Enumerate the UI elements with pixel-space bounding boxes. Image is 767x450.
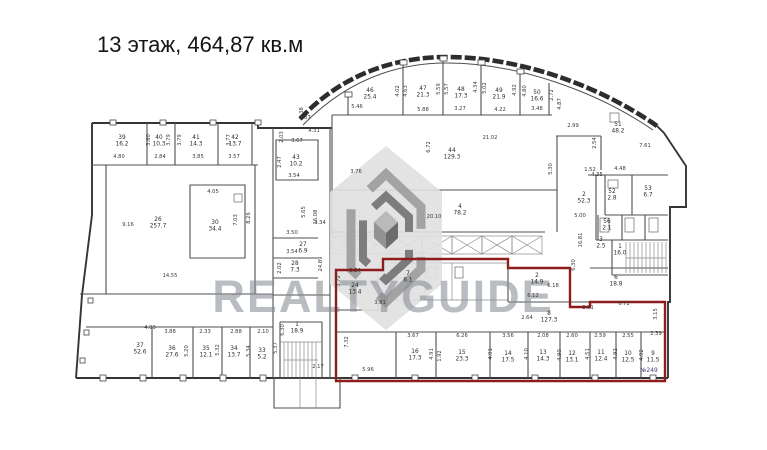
dimension-label: 2.84 — [154, 154, 166, 160]
room-label: 1012.5 — [622, 351, 635, 363]
room-label: 4010.3 — [153, 135, 166, 147]
room-label: 3752.6 — [134, 343, 147, 355]
room-label: 1417.5 — [502, 351, 515, 363]
room-label: 1112.4 — [595, 350, 608, 362]
dimension-label: 14.55 — [163, 273, 178, 279]
dimension-label: 4.92 — [613, 348, 619, 360]
dimension-label: 24.89 — [318, 257, 324, 272]
dimension-label: 2.88 — [230, 329, 242, 335]
dimension-label: 2.72 — [549, 89, 555, 101]
dimension-label: 5.57 — [444, 83, 450, 95]
dimension-label: 7.61 — [639, 143, 651, 149]
dimension-label: 4.09 — [144, 325, 156, 331]
dimension-label: 3.77 — [226, 134, 232, 146]
dimension-label: 4.91 — [488, 348, 494, 360]
room-label: 4310.2 — [290, 155, 303, 167]
dimension-label: 5.65 — [301, 206, 307, 218]
room-label: 1314.3 — [537, 350, 550, 362]
dimension-label: 4.35 — [591, 172, 603, 178]
dimension-label: 2.60 — [566, 333, 578, 339]
dimension-label: 2.08 — [537, 333, 549, 339]
room-label: 3916.2 — [116, 135, 129, 147]
dimension-label: 5.30 — [548, 163, 554, 175]
room-label: 118.9 — [291, 322, 304, 334]
room-label: 116.0 — [614, 244, 627, 256]
dimension-label: 2.10 — [257, 329, 269, 335]
dimension-label: 4.92 — [639, 349, 645, 361]
dimension-label: 3.50 — [286, 230, 298, 236]
dimension-label: 3.88 — [164, 329, 176, 335]
dimension-label: 4.92 — [512, 84, 518, 96]
dimension-label: 5.20 — [184, 345, 190, 357]
dimension-label: 4.91 — [429, 348, 435, 360]
dimension-label: 3.79 — [177, 134, 183, 146]
dimension-label: 4.31 — [308, 128, 320, 134]
dimension-label: 2.38 — [299, 107, 305, 119]
dimension-label: 3.27 — [454, 106, 466, 112]
dimension-label: 3.84 — [349, 268, 361, 274]
room-label: 911.5 — [647, 351, 660, 363]
dimension-label: 3.60 — [146, 134, 152, 146]
dimension-label: 3.72 — [336, 275, 342, 287]
room-label: 276.9 — [298, 242, 308, 254]
dimension-label: 4.90 — [557, 349, 563, 361]
dimension-label: 7.32 — [344, 336, 350, 348]
dimension-label: 2.91 — [582, 305, 594, 311]
dimension-label: 5.32 — [215, 344, 221, 356]
dimension-label: 6.26 — [456, 333, 468, 339]
dimension-label: 6.30 — [280, 324, 286, 336]
dimension-label: 2.99 — [567, 123, 579, 129]
dimension-label: 9.16 — [122, 222, 134, 228]
page-title: 13 этаж, 464,87 кв.м — [97, 32, 303, 57]
watermark-text: REALTYGUIDE — [212, 271, 553, 322]
dimension-label: 4.10 — [524, 348, 530, 360]
dimension-label: 20.10 — [427, 214, 442, 220]
dimension-label: 21.02 — [483, 135, 498, 141]
dimension-label: 5.37 — [273, 342, 279, 354]
room-label: 536.7 — [643, 186, 653, 198]
room-label: 3627.6 — [166, 346, 179, 358]
room-label: 3034.4 — [209, 220, 222, 232]
floorplan-page: REALTYGUIDE №249 3916.24010.34114.34213.… — [0, 0, 767, 450]
dimension-label: 3.81 — [374, 300, 386, 306]
room-label: 3413.7 — [228, 346, 241, 358]
dimension-label: 2.17 — [312, 364, 324, 370]
dimension-label: 3.56 — [502, 333, 514, 339]
dimension-label: 2.03 — [279, 131, 285, 143]
dimension-label: 2.55 — [622, 333, 634, 339]
dimension-label: 6.72 — [618, 301, 630, 307]
dimension-label: 3.79 — [166, 134, 172, 146]
dimension-label: 4.80 — [522, 85, 528, 97]
room-label: 4721.3 — [417, 86, 430, 98]
dimension-label: 3.67 — [291, 138, 303, 144]
dimension-label: 2.02 — [277, 262, 283, 274]
dimension-label: 6.30 — [571, 259, 577, 271]
dimension-label: 3.57 — [228, 154, 240, 160]
room-label: 44129.3 — [444, 148, 461, 160]
dimension-label: 4.80 — [113, 154, 125, 160]
room-label: 1617.3 — [409, 349, 422, 361]
dimension-label: 5.00 — [574, 213, 586, 219]
room-label: 4114.3 — [190, 135, 203, 147]
stairs-left — [280, 342, 322, 377]
room-label: 26257.7 — [150, 217, 167, 229]
room-label: 618.8 — [610, 275, 623, 287]
dimension-label: 3.54 — [286, 249, 298, 255]
dimension-label: 3.76 — [350, 169, 362, 175]
dimension-label: 6.18 — [547, 283, 559, 289]
room-label: 4921.9 — [493, 88, 506, 100]
dimension-label: 5.59 — [436, 83, 442, 95]
floor-plan-drawing: REALTYGUIDE №249 3916.24010.34114.34213.… — [0, 0, 767, 450]
dimension-label: 2.54 — [592, 137, 598, 149]
dimension-label: 5.02 — [482, 82, 488, 94]
dimension-label: 6.12 — [527, 293, 539, 299]
room-label: 5016.6 — [531, 90, 544, 102]
entrance-appendix — [274, 378, 340, 408]
dimension-label: 2.59 — [594, 333, 606, 339]
room-label: 252.3 — [578, 192, 591, 204]
dimension-label: 3.85 — [192, 154, 204, 160]
dimension-label: 2.39 — [650, 331, 662, 337]
room-label: 562.1 — [602, 219, 612, 231]
dimension-label: 4.48 — [614, 166, 626, 172]
dimension-label: 4.34 — [473, 81, 479, 93]
dimension-label: 4.22 — [494, 107, 506, 113]
dimension-label: 3.48 — [531, 106, 543, 112]
dimension-label: 4.05 — [207, 189, 219, 195]
room-label: 287.3 — [290, 261, 300, 273]
room-label: 1213.1 — [566, 351, 579, 363]
selected-area-badge: №249 — [640, 367, 658, 374]
dimension-label: 5.46 — [351, 104, 363, 110]
room-label: 1523.3 — [456, 350, 469, 362]
dimension-label: 3.15 — [653, 308, 659, 320]
dimension-label: 5.34 — [246, 345, 252, 357]
dimension-label: 1.92 — [437, 350, 443, 362]
dimension-label: 3.54 — [288, 173, 300, 179]
dimension-label: 3.34 — [314, 220, 326, 226]
dimension-label: 2.47 — [277, 156, 283, 168]
dimension-label: 5.96 — [362, 367, 374, 373]
room-label: 4625.4 — [364, 88, 377, 100]
dimension-label: 3.67 — [407, 333, 419, 339]
room-label: 478.2 — [454, 204, 467, 216]
room-label: 4817.3 — [455, 87, 468, 99]
dimension-label: 16.81 — [578, 233, 584, 248]
dimension-label: 4.63 — [403, 85, 409, 97]
room-label: 335.2 — [257, 348, 267, 360]
room-label: 5148.2 — [612, 122, 625, 134]
dimension-label: 8.26 — [246, 212, 252, 224]
dimension-label: 2.33 — [199, 329, 211, 335]
room-label: 3512.1 — [200, 346, 213, 358]
room-label: 522.8 — [607, 189, 617, 201]
dimension-label: 2.64 — [521, 315, 533, 321]
dimension-label: 4.02 — [395, 85, 401, 97]
dimension-label: 5.88 — [417, 107, 429, 113]
dimension-label: 7.03 — [233, 214, 239, 226]
dimension-label: 4.87 — [557, 98, 563, 110]
dimension-label: 6.72 — [426, 141, 432, 153]
dimension-label: 4.51 — [585, 348, 591, 360]
